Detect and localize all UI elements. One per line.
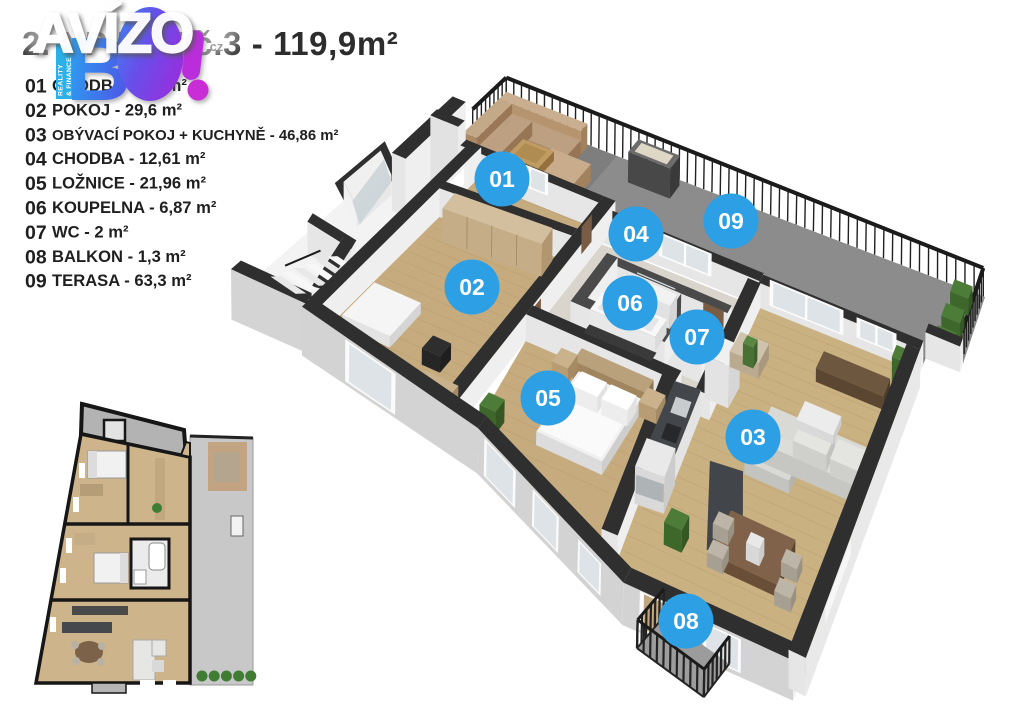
svg-text:02: 02	[25, 100, 47, 122]
svg-text:CHODBA - 12,61 m²: CHODBA - 12,61 m²	[52, 149, 206, 168]
svg-text:04: 04	[623, 221, 649, 247]
svg-text:WC - 2 m²: WC - 2 m²	[52, 222, 129, 241]
svg-text:AVÍZO: AVÍZO	[33, 1, 192, 64]
svg-text:KOUPELNA - 6,87 m²: KOUPELNA - 6,87 m²	[52, 198, 217, 217]
svg-text:09: 09	[25, 271, 47, 293]
svg-text:01: 01	[489, 166, 515, 192]
svg-text:07: 07	[25, 222, 47, 244]
svg-text:TERASA - 63,3 m²: TERASA - 63,3 m²	[52, 271, 192, 290]
svg-text:.cz: .cz	[206, 39, 224, 54]
svg-text:04: 04	[25, 149, 47, 171]
svg-text:REALITY: REALITY	[58, 64, 65, 96]
svg-text:03: 03	[740, 424, 766, 450]
svg-text:07: 07	[684, 324, 710, 350]
svg-text:03: 03	[25, 124, 47, 146]
svg-text:09: 09	[718, 208, 744, 234]
svg-text:08: 08	[25, 246, 47, 268]
svg-text:OBÝVACÍ POKOJ + KUCHYNĚ - 46,8: OBÝVACÍ POKOJ + KUCHYNĚ - 46,86 m²	[52, 126, 338, 144]
svg-text:05: 05	[535, 385, 561, 411]
svg-text:LOŽNICE - 21,96 m²: LOŽNICE - 21,96 m²	[52, 174, 206, 193]
svg-text:06: 06	[25, 198, 47, 220]
svg-text:BALKON - 1,3 m²: BALKON - 1,3 m²	[52, 247, 186, 266]
svg-text:02: 02	[459, 274, 485, 300]
svg-text:06: 06	[617, 290, 643, 316]
svg-text:01: 01	[25, 76, 47, 98]
svg-text:05: 05	[25, 173, 47, 195]
svg-text:08: 08	[673, 608, 699, 634]
